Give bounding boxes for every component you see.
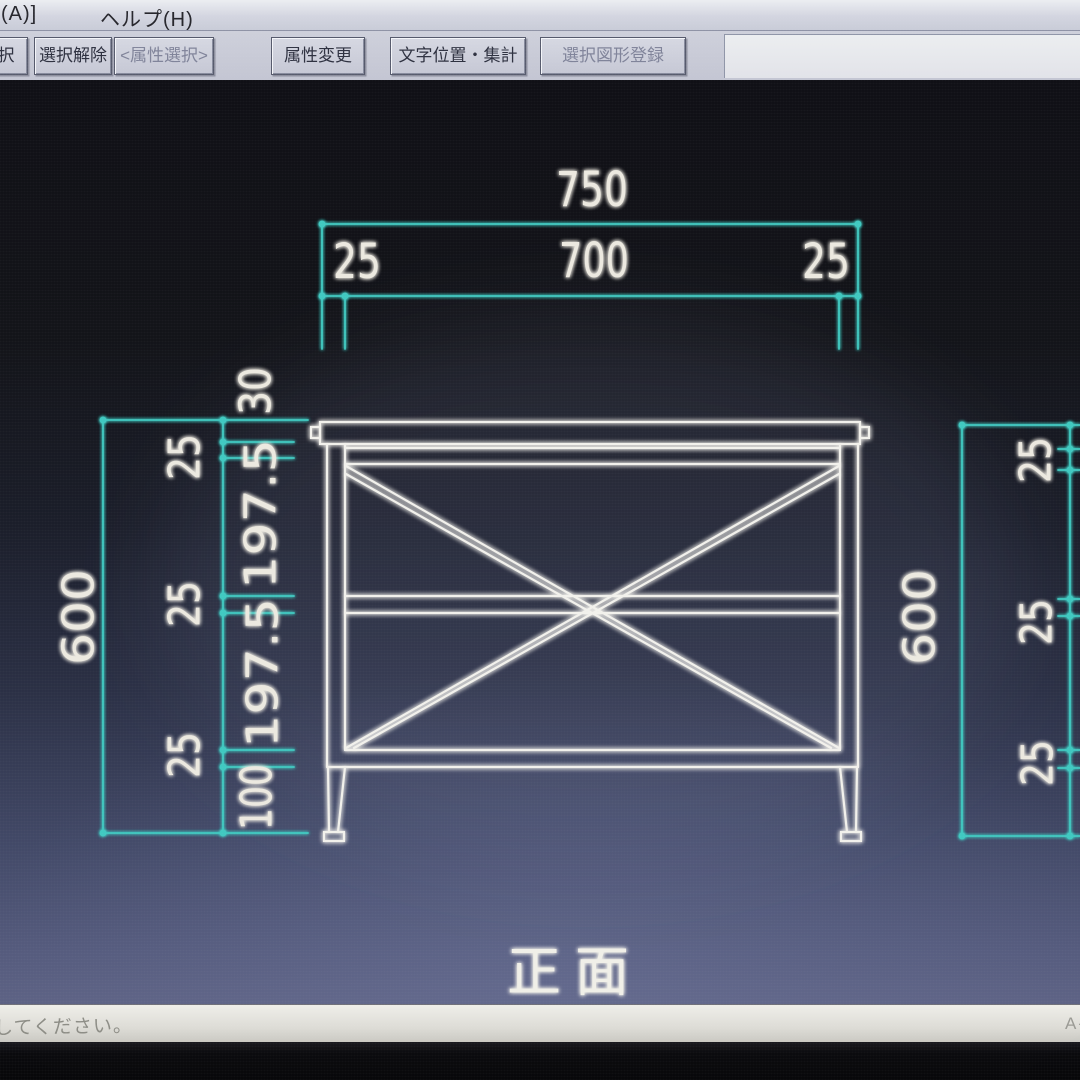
dim-label-25-left-2: 25 xyxy=(160,581,211,627)
drawing-canvas[interactable]: 750 25 700 25 600 30 25 197.5 25 197.5 2… xyxy=(0,80,1080,1004)
toolbar-empty-area xyxy=(724,34,1080,78)
menu-item-help[interactable]: ヘルプ(H) xyxy=(100,3,194,32)
dim-label-100: 100 xyxy=(232,764,283,830)
dim-label-25-right-1: 25 xyxy=(1011,437,1062,483)
menu-item-partial[interactable]: (A)] xyxy=(1,3,37,26)
right-foot-outer xyxy=(856,767,857,832)
toolbar-button-deselect[interactable]: 選択解除 xyxy=(34,37,112,75)
monitor-bezel xyxy=(0,1042,1080,1080)
dim-label-25-top-left: 25 xyxy=(333,234,381,290)
status-message: してください。 xyxy=(0,1011,133,1040)
dim-label-25-right-3: 25 xyxy=(1013,740,1064,786)
left-foot-pad xyxy=(324,832,344,841)
dim-label-25-right-2: 25 xyxy=(1012,599,1063,645)
status-bar: してください。 A- xyxy=(0,1004,1080,1045)
cad-canvas-svg[interactable]: 750 25 700 25 600 30 25 197.5 25 197.5 2… xyxy=(0,80,1080,1004)
dim-label-30: 30 xyxy=(231,367,282,415)
toolbar-button-attribute-change[interactable]: 属性変更 xyxy=(271,37,365,75)
toolbar-button-attribute-select[interactable]: <属性選択> xyxy=(114,37,214,75)
toolbar-button-select-partial[interactable]: 択 xyxy=(0,37,28,75)
dim-label-700: 700 xyxy=(559,233,629,289)
toolbar-button-register-shape[interactable]: 選択図形登録 xyxy=(540,37,686,75)
status-right-label: A- xyxy=(1065,1014,1080,1034)
screen: (A)] ヘルプ(H) 択 選択解除 <属性選択> 属性変更 文字位置・集計 選… xyxy=(0,0,1080,1080)
dim-label-600-left: 600 xyxy=(54,569,105,665)
view-title: 正面 xyxy=(507,941,643,1004)
toolbar: 択 選択解除 <属性選択> 属性変更 文字位置・集計 選択図形登録 xyxy=(0,31,1080,80)
toolbar-button-text-position[interactable]: 文字位置・集計 xyxy=(390,37,526,75)
right-foot-pad xyxy=(841,832,861,841)
dim-label-197-5-1: 197.5 xyxy=(236,439,287,589)
dim-label-25-left-1: 25 xyxy=(160,434,211,480)
menu-bar: (A)] ヘルプ(H) xyxy=(0,0,1080,31)
dim-label-750: 750 xyxy=(556,162,628,218)
dim-label-600-right: 600 xyxy=(895,569,946,665)
left-foot-outer xyxy=(328,767,329,832)
dim-label-25-left-3: 25 xyxy=(160,732,211,778)
screen-glare-halo xyxy=(160,320,1020,860)
dim-label-25-top-right: 25 xyxy=(802,234,850,290)
dim-label-197-5-2: 197.5 xyxy=(238,598,289,748)
